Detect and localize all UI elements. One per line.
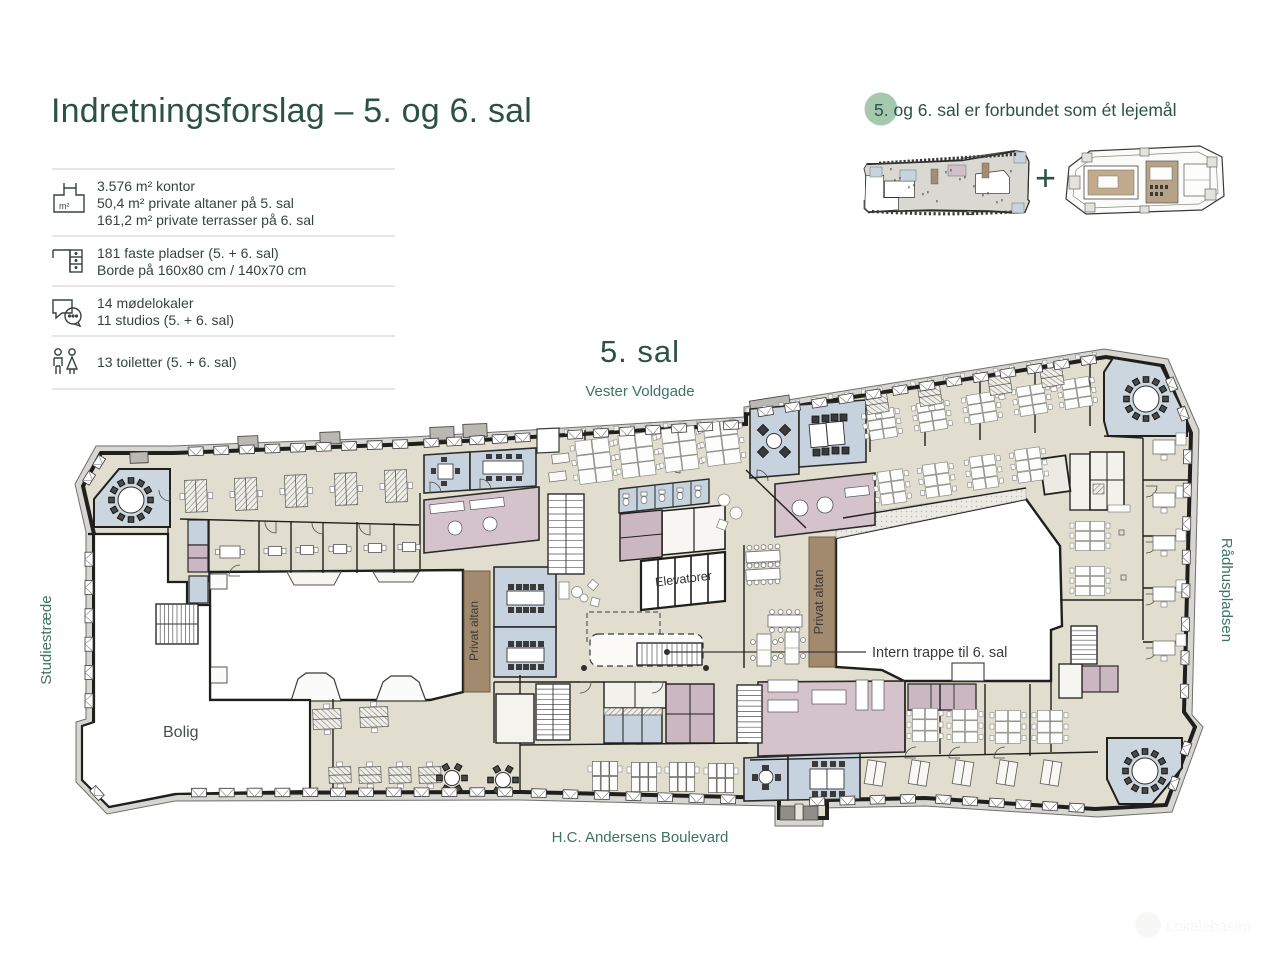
- svg-text:Studiestræde: Studiestræde: [38, 595, 55, 684]
- svg-text:m²: m²: [59, 201, 70, 211]
- svg-text:181 faste pladser (5. + 6. sal: 181 faste pladser (5. + 6. sal): [97, 245, 279, 261]
- svg-text:Intern trappe til 6. sal: Intern trappe til 6. sal: [872, 645, 1007, 661]
- svg-text:13 toiletter (5. + 6. sal): 13 toiletter (5. + 6. sal): [97, 354, 237, 370]
- svg-text:Bolig: Bolig: [163, 724, 199, 741]
- svg-text:3.576 m² kontor: 3.576 m² kontor: [97, 178, 195, 194]
- svg-text:Privat altan: Privat altan: [467, 601, 481, 661]
- svg-text:5. og 6. sal er forbundet som: 5. og 6. sal er forbundet som ét lejemål: [874, 100, 1177, 120]
- svg-text:Rådhuspladsen: Rådhuspladsen: [1218, 538, 1235, 642]
- svg-text:H.C. Andersens Boulevard: H.C. Andersens Boulevard: [552, 829, 729, 846]
- svg-text:5. sal: 5. sal: [600, 334, 680, 369]
- svg-text:Lokalebasen: Lokalebasen: [1166, 918, 1251, 935]
- svg-text:14 mødelokaler: 14 mødelokaler: [97, 295, 194, 311]
- svg-text:161,2 m² private terrasser på: 161,2 m² private terrasser på 6. sal: [97, 212, 314, 228]
- svg-text:50,4 m² private altaner på 5.: 50,4 m² private altaner på 5. sal: [97, 195, 294, 211]
- svg-text:Indretningsforslag – 5. og 6.: Indretningsforslag – 5. og 6. sal: [51, 92, 532, 130]
- svg-text:+: +: [1035, 157, 1056, 198]
- svg-text:11 studios (5. + 6. sal): 11 studios (5. + 6. sal): [97, 312, 234, 328]
- svg-text:Vester Voldgade: Vester Voldgade: [585, 383, 694, 400]
- svg-text:Borde på 160x80 cm / 140x70 cm: Borde på 160x80 cm / 140x70 cm: [97, 262, 306, 278]
- svg-text:Privat altan: Privat altan: [811, 569, 826, 634]
